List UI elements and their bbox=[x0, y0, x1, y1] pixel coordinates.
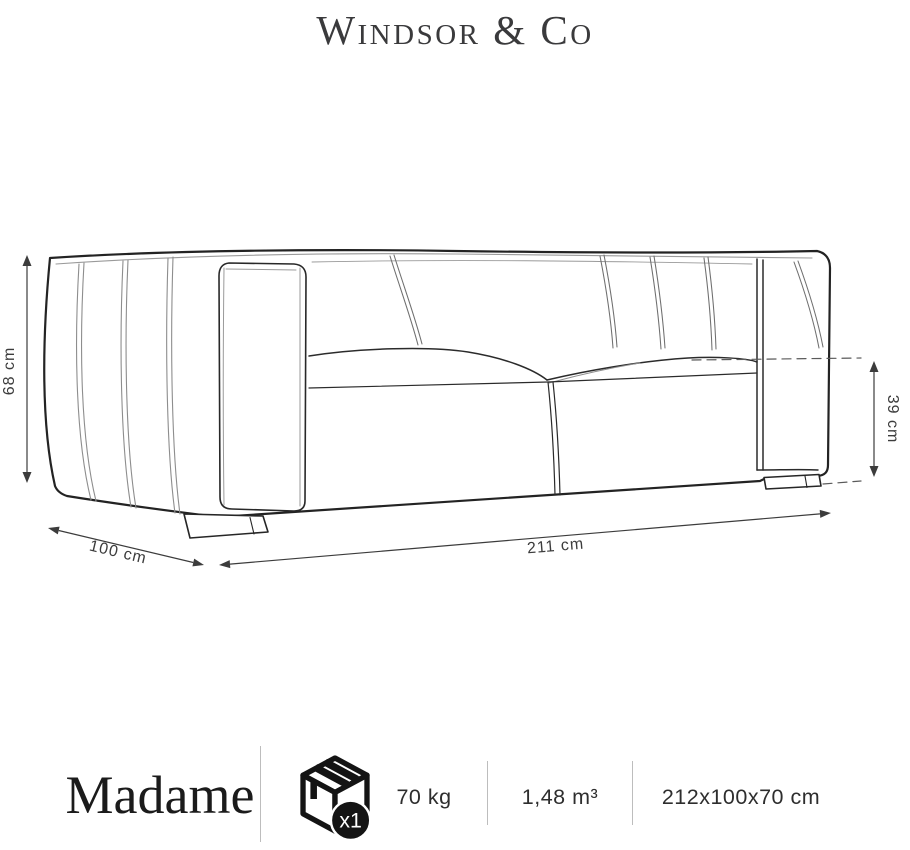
depth-label: 100 cm bbox=[88, 538, 149, 568]
product-spec-sheet: Windsor & Co bbox=[0, 0, 910, 850]
sofa-drawing bbox=[44, 250, 861, 538]
dimension-seat-height bbox=[870, 361, 879, 477]
width-label: 211 cm bbox=[526, 536, 585, 558]
seat-height-label: 39 cm bbox=[884, 395, 901, 444]
dimension-back-height bbox=[23, 255, 32, 483]
dimension-width bbox=[219, 510, 831, 568]
back-height-label: 68 cm bbox=[1, 347, 18, 396]
sofa-dimension-diagram: 68 cm 39 cm 100 cm 211 cm bbox=[0, 0, 910, 850]
